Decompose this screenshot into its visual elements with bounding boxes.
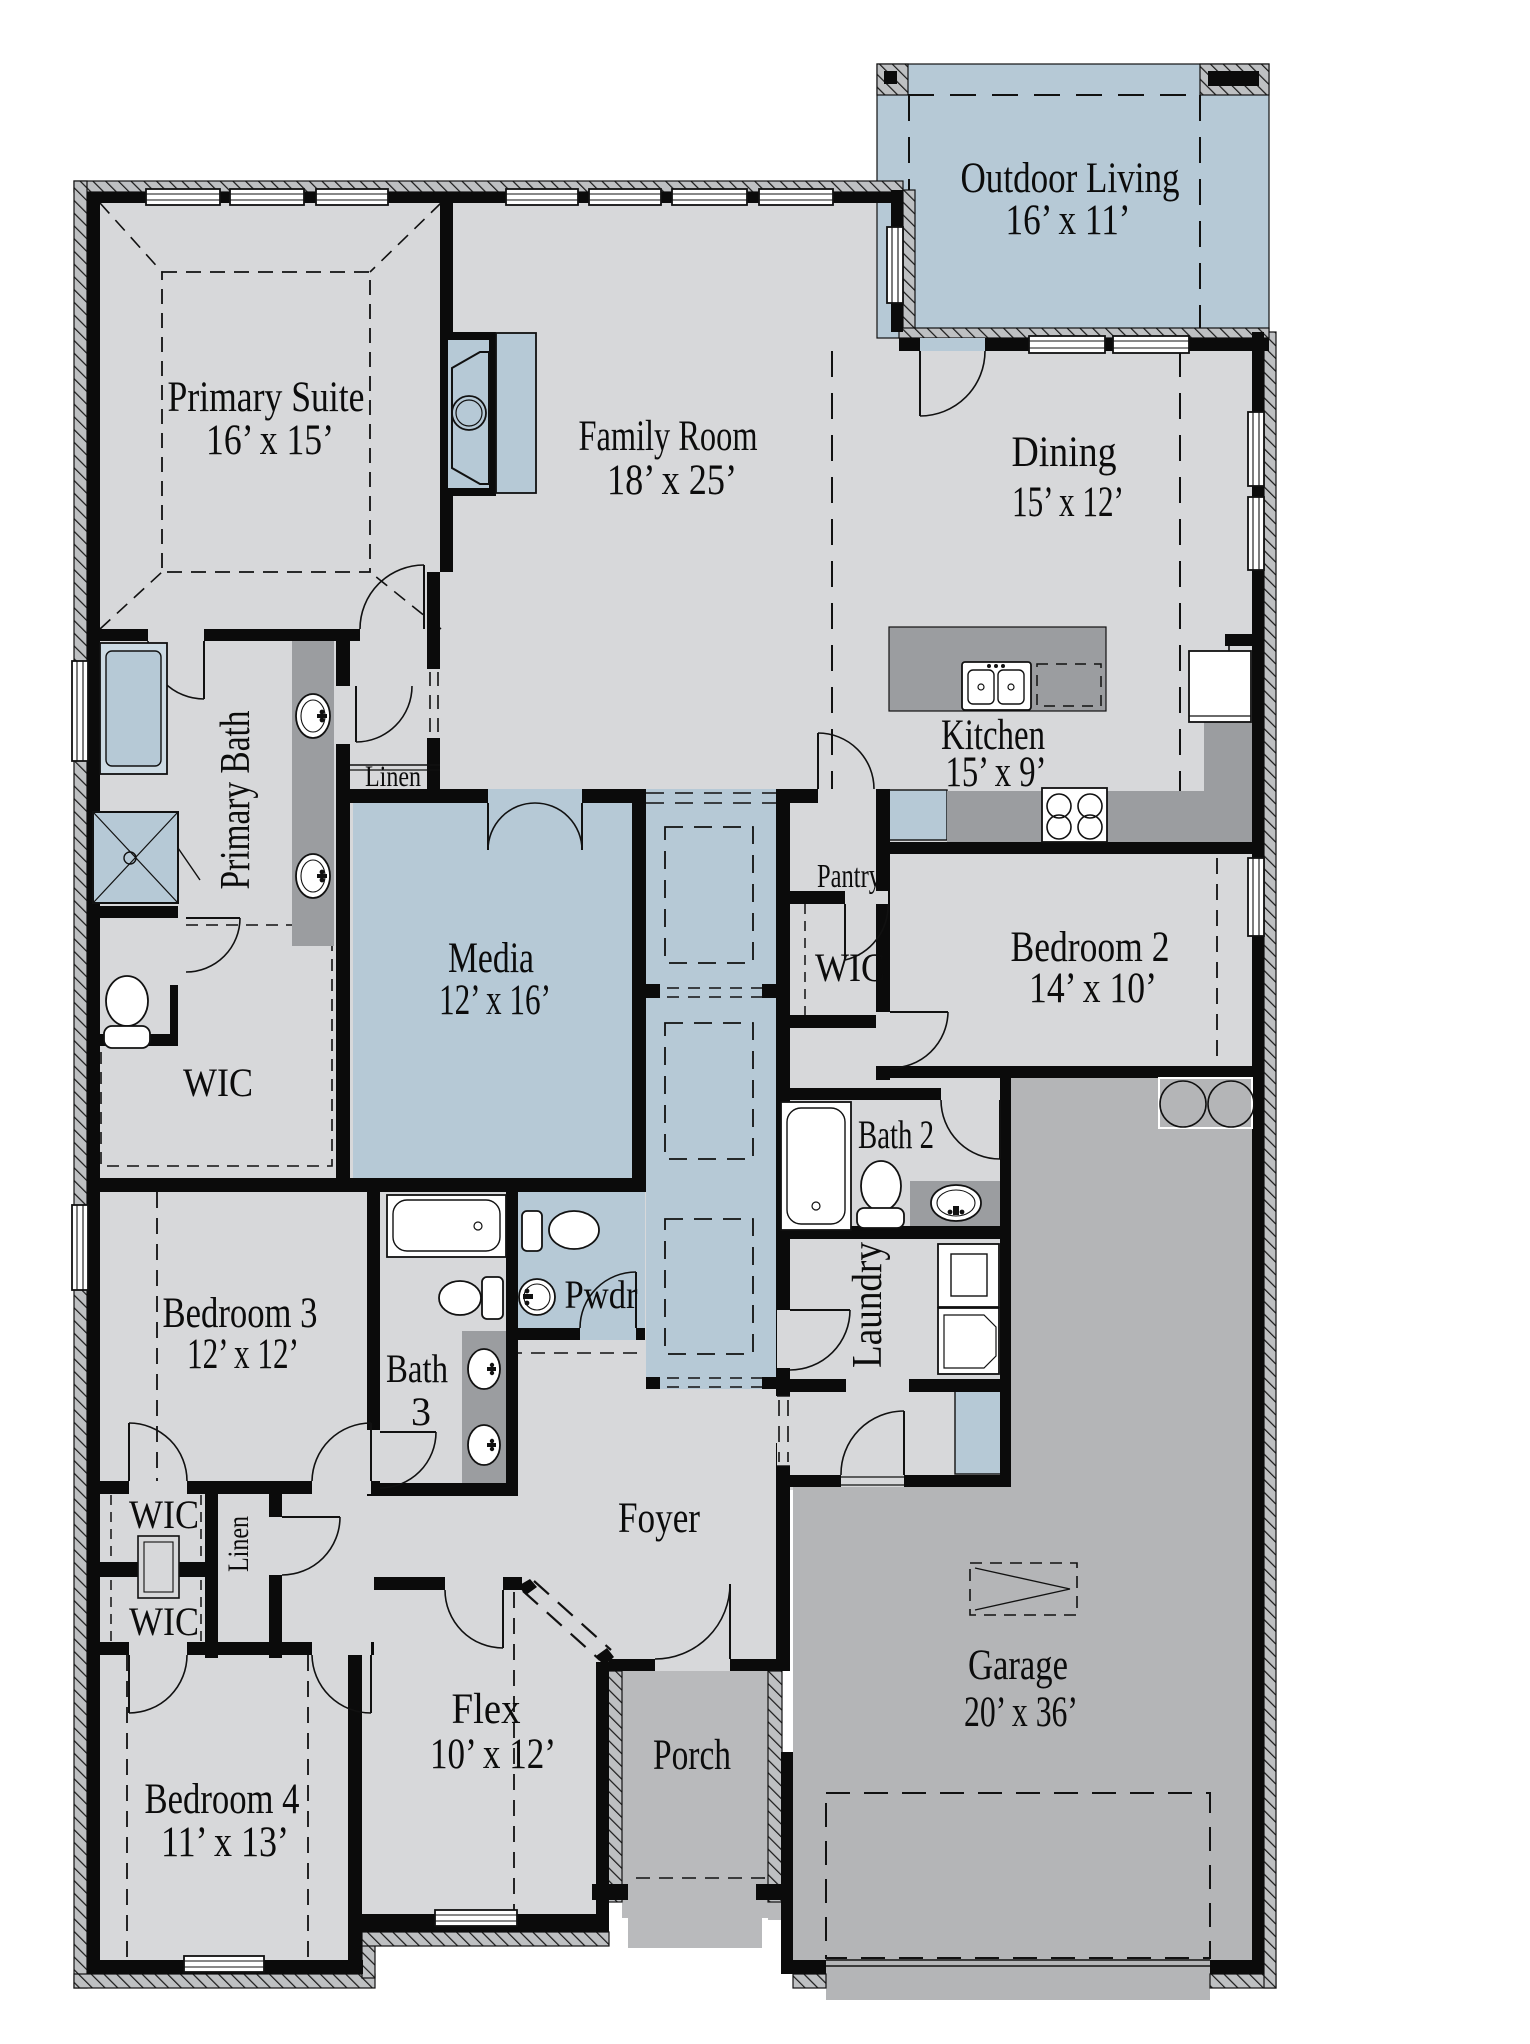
svg-text:Garage: Garage <box>968 1642 1068 1689</box>
svg-text:Bath: Bath <box>386 1346 448 1391</box>
svg-text:14’ x 10’: 14’ x 10’ <box>1029 965 1157 1012</box>
svg-text:Linen: Linen <box>222 1516 255 1572</box>
svg-text:WIC: WIC <box>815 945 885 990</box>
svg-text:16’ x 11’: 16’ x 11’ <box>1006 197 1131 244</box>
svg-text:Outdoor Living: Outdoor Living <box>961 155 1180 202</box>
svg-text:Primary Suite: Primary Suite <box>168 374 365 421</box>
svg-text:Laundry: Laundry <box>845 1242 891 1368</box>
svg-text:15’ x 9’: 15’ x 9’ <box>946 749 1047 796</box>
svg-text:Dining: Dining <box>1012 429 1117 476</box>
svg-text:Foyer: Foyer <box>618 1495 700 1542</box>
svg-text:WIC: WIC <box>129 1492 199 1537</box>
svg-text:Family Room: Family Room <box>579 413 758 460</box>
svg-text:Bedroom 3: Bedroom 3 <box>163 1290 318 1337</box>
svg-text:Flex: Flex <box>452 1686 521 1733</box>
svg-text:Pantry: Pantry <box>817 858 881 895</box>
svg-text:20’ x 36’: 20’ x 36’ <box>964 1689 1078 1736</box>
svg-text:Bedroom 4: Bedroom 4 <box>145 1776 300 1823</box>
svg-text:Pwdr: Pwdr <box>565 1272 638 1317</box>
svg-text:WIC: WIC <box>183 1060 253 1105</box>
svg-text:3: 3 <box>411 1389 431 1434</box>
svg-text:16’ x 15’: 16’ x 15’ <box>206 417 334 464</box>
svg-text:WIC: WIC <box>129 1599 199 1644</box>
svg-text:Bedroom 2: Bedroom 2 <box>1011 924 1170 971</box>
svg-text:Linen: Linen <box>365 760 421 793</box>
svg-text:12’ x 16’: 12’ x 16’ <box>439 977 551 1024</box>
svg-text:Media: Media <box>448 935 534 982</box>
svg-text:Bath 2: Bath 2 <box>858 1112 934 1157</box>
svg-text:11’ x 13’: 11’ x 13’ <box>161 1819 289 1866</box>
svg-text:12’ x 12’: 12’ x 12’ <box>187 1331 299 1378</box>
svg-text:Primary Bath: Primary Bath <box>213 711 259 890</box>
svg-text:Porch: Porch <box>653 1732 731 1779</box>
svg-text:15’ x 12’: 15’ x 12’ <box>1012 479 1124 526</box>
svg-text:10’ x 12’: 10’ x 12’ <box>430 1731 556 1778</box>
svg-text:18’ x 25’: 18’ x 25’ <box>607 457 737 504</box>
